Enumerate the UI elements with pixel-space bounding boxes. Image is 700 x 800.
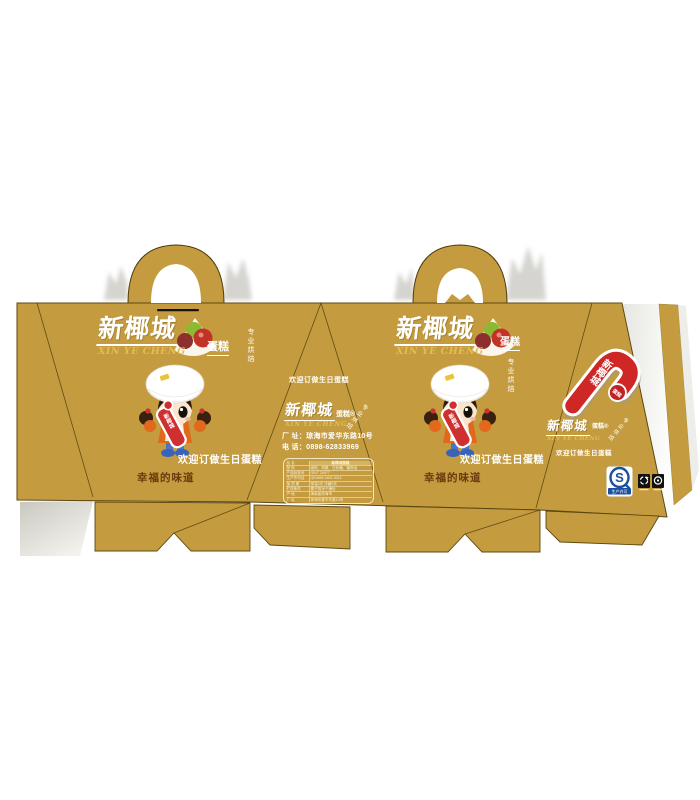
table-label: 厂 址: [286, 498, 310, 502]
packaging-dieline-canvas: 新椰城 新椰城 新椰城 蛋糕: [0, 0, 700, 800]
table-value: QS4690 2401 0012: [310, 476, 372, 480]
tagline-vertical: 专业烘焙: [506, 358, 514, 394]
table-value: 置于阴凉干燥处: [310, 487, 372, 491]
bottom-flap-right: [386, 506, 540, 552]
candy-cane-logo: 新椰城 蛋糕: [558, 338, 642, 422]
mascot-girl-illustration: 新椰城: [136, 363, 214, 461]
table-label: 贮存条件: [286, 487, 310, 491]
qs-letter: S: [615, 470, 624, 485]
brand-logo-front: 新椰城 XIN YE CHENG: [98, 317, 186, 357]
qs-certification-mark: S 生产许可: [606, 466, 633, 497]
brand-name-cn: 新椰城: [284, 403, 337, 421]
bottom-flap-end: [546, 511, 659, 545]
welcome-slogan: 欢迎订做生日蛋糕: [178, 455, 262, 467]
table-value: 面粉、鸡蛋、白砂糖、植物油: [310, 466, 372, 470]
table-label: 产 地: [286, 492, 310, 496]
taste-slogan: 幸福的味道: [137, 472, 195, 484]
mascot-girl-illustration: 新椰城: [421, 363, 499, 461]
brand-name-cn: 新椰城: [96, 317, 181, 346]
factory-phone: 电 话：0898-62833969: [282, 444, 359, 452]
product-label: 蛋糕®: [592, 424, 608, 431]
brand-name-en: XIN YE CHENG: [396, 346, 484, 357]
bottom-flap-left: [95, 502, 250, 551]
shadow-bottom-left: [20, 501, 93, 556]
table-label: 产品标准号: [286, 471, 310, 475]
welcome-slogan: 欢迎订做生日蛋糕: [289, 377, 349, 385]
table-value: 新椰城蛋糕: [310, 461, 372, 465]
recycle-marks: [638, 474, 666, 493]
brand-name-en: XIN YE CHENG: [98, 346, 186, 357]
bottom-flap-mid: [254, 505, 350, 549]
table-label: 品 名: [286, 461, 310, 465]
taste-slogan: 幸福的味道: [424, 472, 482, 484]
table-value: GB/T 20977: [310, 471, 372, 475]
brand-name-en: XIN YE CHENG: [285, 421, 347, 429]
tagline-vertical: 专业烘焙: [246, 328, 254, 364]
table-label: 生产许可证: [286, 476, 310, 480]
welcome-slogan: 欢迎订做生日蛋糕: [460, 455, 544, 467]
table-value: 琼海市爱华东路10号: [310, 498, 372, 502]
table-label: 保 质 期: [286, 482, 310, 486]
factory-address: 厂 址：琼海市爱华东路10号: [282, 433, 373, 441]
table-label: 配 料: [286, 466, 310, 470]
qs-caption: 生产许可: [612, 488, 628, 494]
table-value: 海南省琼海市: [310, 492, 372, 496]
brand-name-cn: 新椰城: [546, 420, 591, 436]
handle-slot: [157, 309, 199, 311]
product-label: 蛋糕: [207, 341, 229, 356]
brand-name-cn: 新椰城: [394, 317, 479, 346]
product-label: 蛋糕: [500, 337, 520, 351]
welcome-slogan: 欢迎订做生日蛋糕: [556, 450, 612, 457]
table-value: 常温3天 冷藏5天: [310, 482, 372, 486]
product-info-table: 品 名新椰城蛋糕 配 料面粉、鸡蛋、白砂糖、植物油 产品标准号GB/T 2097…: [283, 458, 374, 504]
brand-logo-back: 新椰城 XIN YE CHENG: [396, 317, 484, 357]
brand-name-en: XIN YE CHENG: [547, 436, 600, 443]
